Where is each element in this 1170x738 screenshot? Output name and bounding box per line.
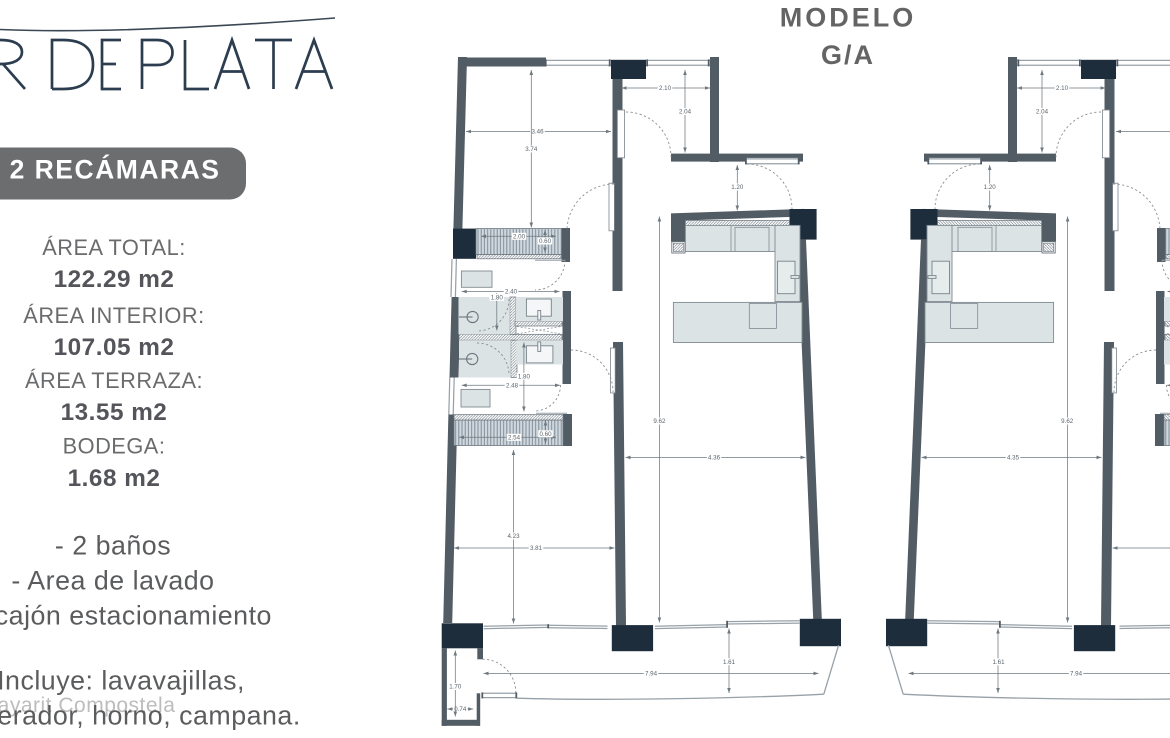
svg-text:2.10: 2.10 [1056, 85, 1069, 92]
svg-text:ÁREA TOTAL:: ÁREA TOTAL: [42, 235, 186, 260]
svg-text:0.60: 0.60 [539, 431, 552, 438]
svg-text:1.80: 1.80 [491, 295, 504, 302]
svg-text:1.61: 1.61 [723, 659, 736, 666]
svg-text:2.04: 2.04 [1036, 109, 1049, 116]
svg-text:3.74: 3.74 [525, 146, 538, 153]
svg-text:2.48: 2.48 [506, 383, 519, 390]
svg-text:2.10: 2.10 [659, 85, 672, 92]
svg-text:13.55 m2: 13.55 m2 [61, 399, 168, 426]
svg-text:122.29 m2: 122.29 m2 [54, 266, 175, 293]
svg-text:2.04: 2.04 [679, 109, 692, 116]
svg-text:1.68 m2: 1.68 m2 [68, 465, 161, 492]
svg-text:7.94: 7.94 [1070, 671, 1083, 678]
svg-text:- Area de lavado: - Area de lavado [11, 566, 214, 596]
svg-text:- 1 cajón estacionamiento: - 1 cajón estacionamiento [0, 601, 272, 631]
svg-text:Incluye: lavavajillas,: Incluye: lavavajillas, [0, 666, 245, 696]
svg-text:ÁREA INTERIOR:: ÁREA INTERIOR: [23, 303, 204, 328]
svg-text:0.74: 0.74 [454, 706, 467, 713]
svg-text:G/A: G/A [821, 40, 875, 70]
svg-text:1.70: 1.70 [449, 684, 462, 691]
svg-text:2.54: 2.54 [508, 435, 521, 442]
svg-text:0.60: 0.60 [539, 238, 552, 245]
svg-text:1.80: 1.80 [518, 374, 531, 381]
svg-text:4.36: 4.36 [708, 455, 721, 462]
svg-text:4.23: 4.23 [507, 533, 520, 540]
svg-text:7.94: 7.94 [645, 671, 658, 678]
svg-text:2.00: 2.00 [513, 234, 526, 241]
svg-text:MODELO: MODELO [780, 3, 917, 33]
svg-text:4.35: 4.35 [1007, 455, 1020, 462]
svg-text:ÁREA TERRAZA:: ÁREA TERRAZA: [25, 368, 203, 393]
svg-text:BODEGA:: BODEGA: [63, 434, 166, 459]
svg-text:2.40: 2.40 [505, 289, 518, 296]
svg-text:- 2 baños: - 2 baños [55, 531, 171, 561]
svg-text:3.81: 3.81 [530, 545, 543, 552]
svg-text:refrigerador, horno, campana.: refrigerador, horno, campana. [0, 701, 301, 731]
svg-text:1.61: 1.61 [992, 659, 1005, 666]
svg-text:2 RECÁMARAS: 2 RECÁMARAS [10, 155, 221, 185]
svg-text:1.20: 1.20 [984, 184, 997, 191]
svg-text:107.05 m2: 107.05 m2 [54, 334, 175, 361]
svg-text:9.62: 9.62 [653, 418, 666, 425]
svg-text:9.62: 9.62 [1061, 418, 1074, 425]
svg-text:1.20: 1.20 [731, 184, 744, 191]
svg-text:3.46: 3.46 [531, 129, 544, 136]
